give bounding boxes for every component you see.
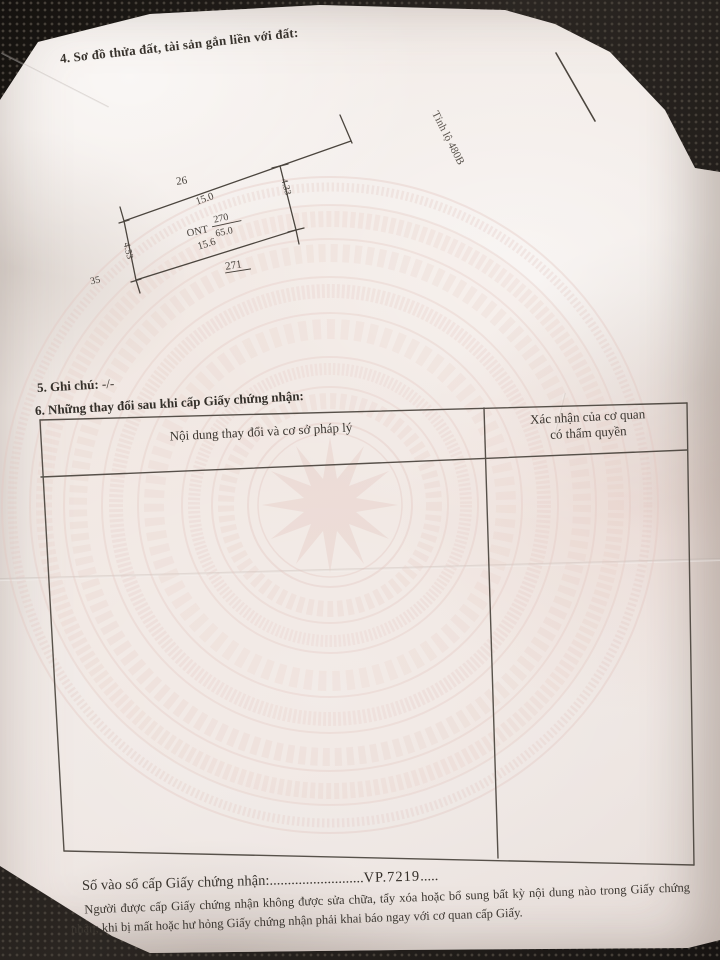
dimension-tick	[340, 115, 352, 143]
dimension-tick	[120, 207, 124, 221]
right-edge-length-label: 4.33	[278, 178, 292, 197]
section5-value: -/-	[101, 376, 114, 392]
top-edge-length-label: 15.0	[194, 191, 215, 207]
table-bottom-border	[64, 851, 694, 865]
boundary-extension-line	[280, 141, 351, 166]
registry-entry-number: VP.7219	[363, 869, 420, 887]
adjacent-parcel-top-label: 26	[175, 174, 188, 187]
bronze-drum-watermark	[2, 177, 658, 833]
leader-dots: ..........................	[269, 870, 364, 889]
road-line	[556, 53, 595, 121]
adjacent-parcel-left-label: 35	[89, 274, 101, 287]
page-graphics: 26 15.0 ONT 270 65.0 15.6 271 4.53 4.33 …	[0, 0, 720, 960]
section5-label: 5. Ghi chú:	[37, 377, 100, 395]
table-right-border	[687, 403, 694, 865]
road-name-label: Tỉnh lộ 480B	[429, 109, 466, 167]
trailing-dots: .....	[420, 868, 439, 884]
photo-of-certificate-page: { "page": { "section4_heading": "4. Sơ đ…	[0, 0, 720, 960]
